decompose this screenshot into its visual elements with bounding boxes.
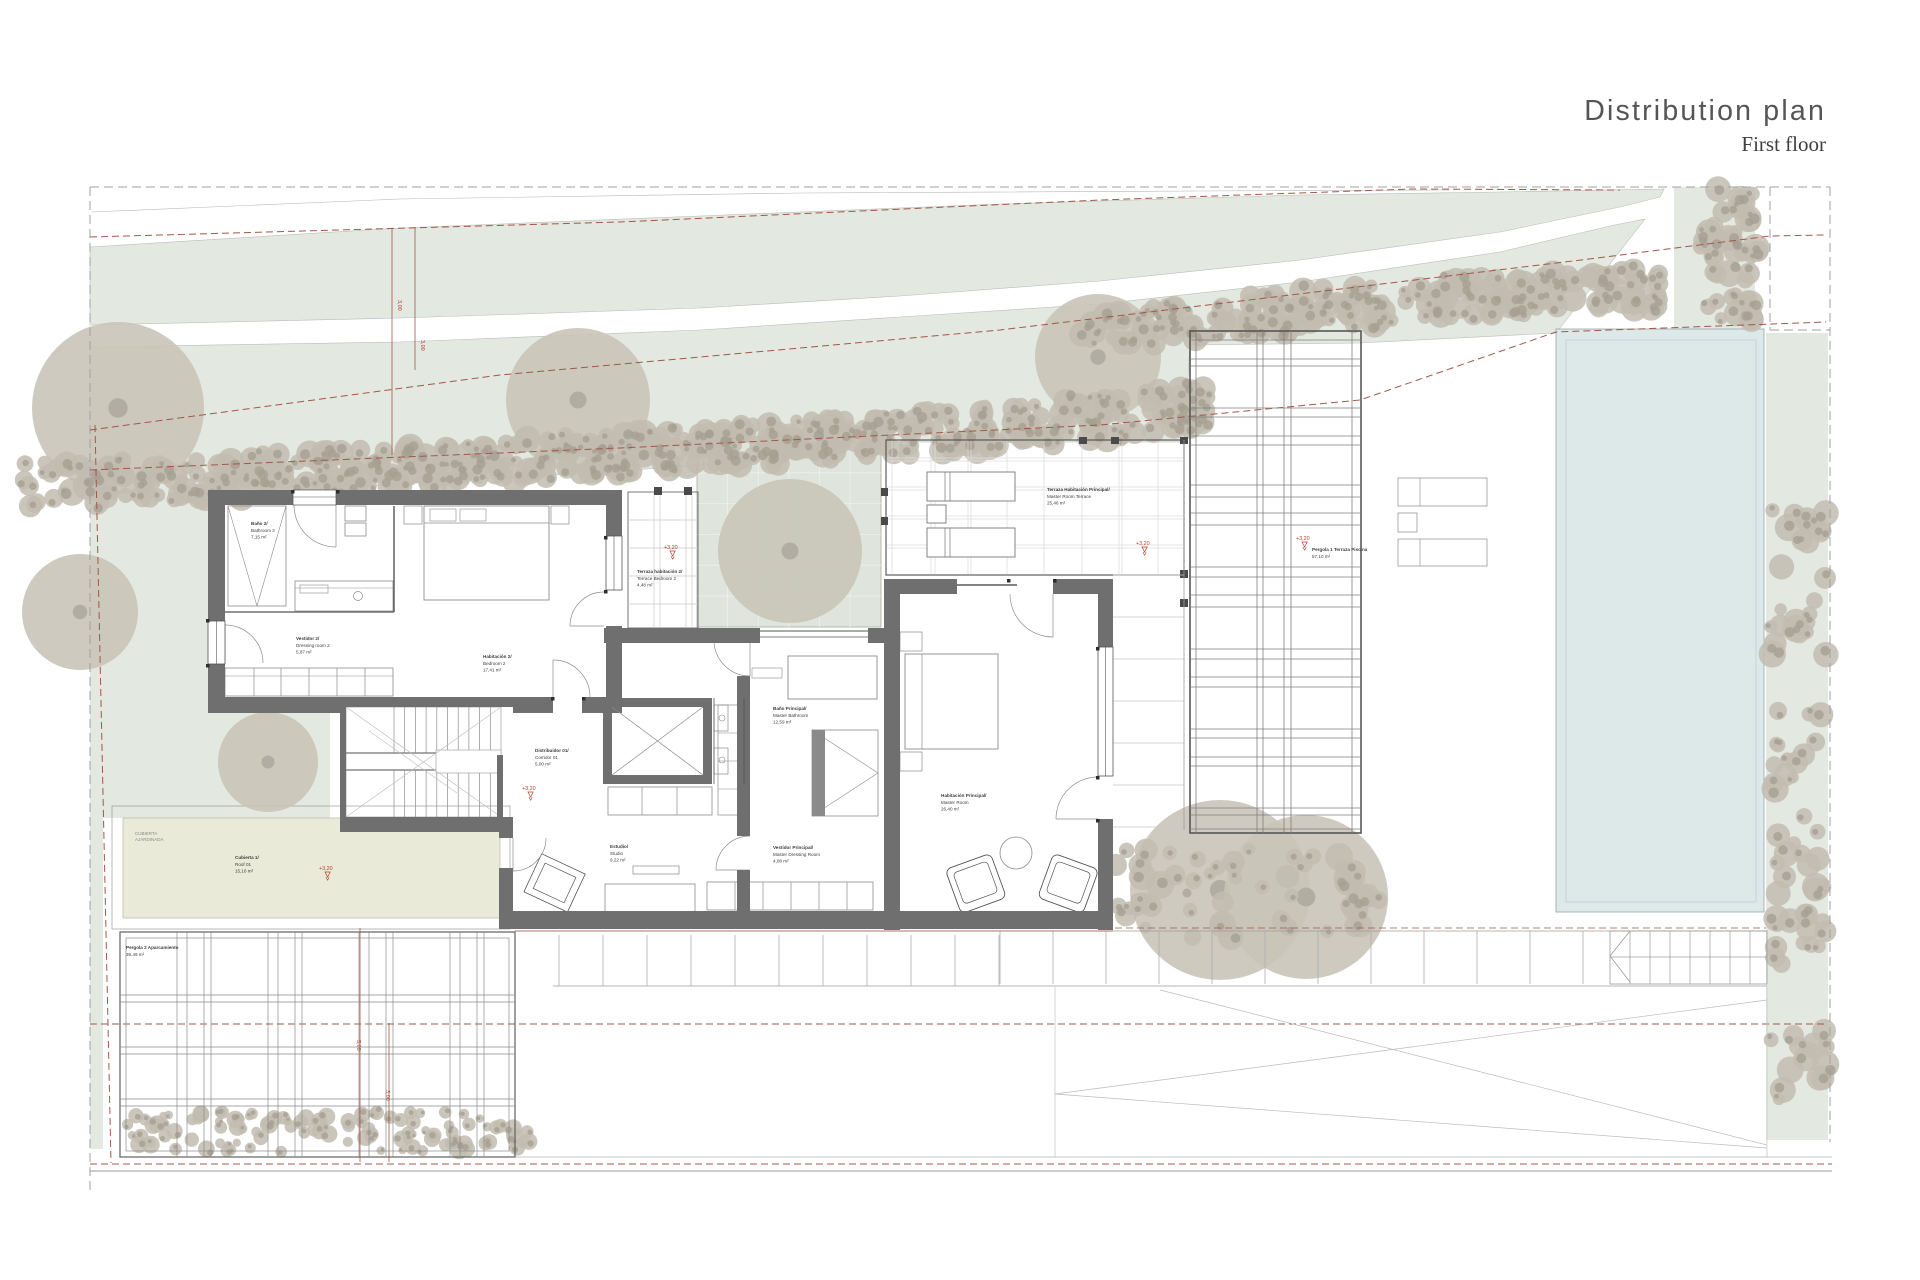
svg-text:Terraza habitación 2/: Terraza habitación 2/ [637,569,683,574]
svg-text:17,41 m²: 17,41 m² [483,668,502,673]
svg-text:9,22 m²: 9,22 m² [610,858,626,863]
svg-text:26,40 m²: 26,40 m² [941,807,960,812]
svg-text:Vestidor 2/: Vestidor 2/ [296,636,320,641]
svg-text:+3,20: +3,20 [1296,536,1310,542]
svg-text:5,00 m²: 5,00 m² [535,762,551,767]
svg-text:Roof 01: Roof 01 [235,862,252,867]
svg-text:Distribution plan: Distribution plan [1584,95,1826,127]
svg-text:Pergola 2 Aparcamiento: Pergola 2 Aparcamiento [126,945,179,950]
svg-text:3,00: 3,00 [396,300,402,311]
svg-text:Pergola 1 Terraza Piscina: Pergola 1 Terraza Piscina [1312,547,1368,552]
svg-text:5,87 m²: 5,87 m² [296,650,312,655]
svg-text:4,08 m²: 4,08 m² [773,859,789,864]
svg-text:Terraza Habitación Principal/: Terraza Habitación Principal/ [1047,487,1110,492]
svg-text:Baño Principal/: Baño Principal/ [773,706,807,711]
svg-text:Corridor 01: Corridor 01 [535,755,558,760]
svg-text:Habitación 2/: Habitación 2/ [483,654,512,659]
svg-text:3,00: 3,00 [419,340,425,351]
svg-text:Dressing room 2: Dressing room 2 [296,643,330,648]
svg-text:Baño 2/: Baño 2/ [251,521,268,526]
svg-text:AJARDINADA: AJARDINADA [135,837,164,842]
svg-text:Habitación Principal/: Habitación Principal/ [941,793,987,798]
svg-text:Terrace Bedroom 2: Terrace Bedroom 2 [637,576,677,581]
svg-text:Master Dressing Room: Master Dressing Room [773,852,820,857]
svg-text:+3,20: +3,20 [522,786,536,792]
svg-text:Estudio/: Estudio/ [610,844,629,849]
svg-text:4,48 m²: 4,48 m² [637,583,653,588]
svg-text:15,16 m²: 15,16 m² [235,869,254,874]
svg-text:Master Bathroom: Master Bathroom [773,713,808,718]
svg-text:Master Room Terrace: Master Room Terrace [1047,494,1092,499]
svg-text:+3,20: +3,20 [664,545,678,551]
svg-text:Bedroom 2: Bedroom 2 [483,661,506,666]
svg-text:+3,20: +3,20 [1136,541,1150,547]
svg-text:Distribuidor 01/: Distribuidor 01/ [535,748,569,753]
svg-text:7,15 m²: 7,15 m² [251,535,267,540]
svg-text:Vestidor Principal/: Vestidor Principal/ [773,845,814,850]
svg-text:39,49 m²: 39,49 m² [126,952,145,957]
svg-text:First floor: First floor [1741,132,1826,156]
svg-text:Master Room: Master Room [941,800,969,805]
svg-text:25,46 m²: 25,46 m² [1047,501,1066,506]
svg-text:Studio: Studio [610,851,623,856]
svg-text:Cubierta 1/: Cubierta 1/ [235,855,259,860]
svg-text:+3,20: +3,20 [319,866,333,872]
svg-text:12,59 m²: 12,59 m² [773,720,792,725]
svg-text:5,00: 5,00 [355,1040,361,1051]
svg-text:CUBIERTA: CUBIERTA [135,831,157,836]
svg-text:57,10 m²: 57,10 m² [1312,554,1331,559]
svg-text:Bathroom 2: Bathroom 2 [251,528,275,533]
